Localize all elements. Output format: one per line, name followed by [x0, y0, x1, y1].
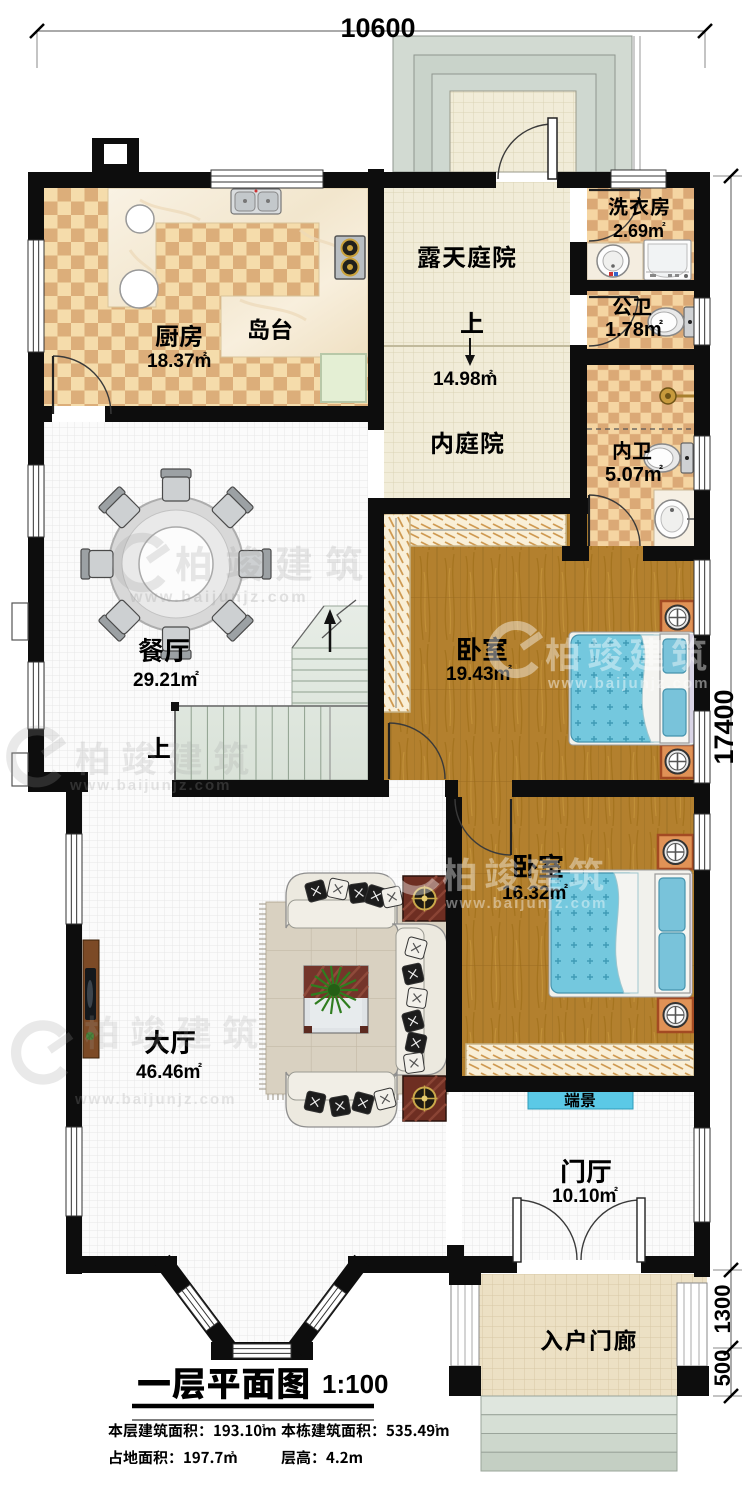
- svg-text:²: ²: [564, 881, 568, 895]
- svg-text:²: ²: [203, 349, 207, 363]
- svg-text:14.98m: 14.98m: [433, 369, 497, 390]
- svg-text:www.baijunjz.com: www.baijunjz.com: [74, 1091, 236, 1108]
- svg-text:1:100: 1:100: [322, 1369, 389, 1399]
- svg-text:www.baijunjz.com: www.baijunjz.com: [547, 675, 709, 692]
- svg-text:²: ²: [659, 317, 663, 331]
- svg-text:²: ²: [662, 221, 666, 233]
- svg-text:²: ²: [198, 1060, 202, 1074]
- svg-text:18.37m: 18.37m: [147, 351, 211, 372]
- svg-text:²: ²: [659, 462, 663, 476]
- svg-text:²: ²: [435, 1422, 438, 1432]
- svg-text:²: ²: [262, 1422, 265, 1432]
- svg-text:²: ²: [489, 367, 493, 381]
- svg-text:29.21m: 29.21m: [133, 670, 197, 691]
- svg-text:2.69m: 2.69m: [613, 221, 664, 241]
- svg-text:²: ²: [231, 1449, 234, 1459]
- svg-text:1300: 1300: [710, 1285, 735, 1334]
- svg-text:10.10m: 10.10m: [552, 1186, 616, 1207]
- svg-text:²: ²: [195, 668, 199, 682]
- svg-text:²: ²: [614, 1184, 618, 1198]
- svg-text:5.07m: 5.07m: [605, 464, 662, 486]
- svg-text:46.46m: 46.46m: [136, 1062, 200, 1083]
- svg-text:1.78m: 1.78m: [605, 319, 662, 341]
- svg-text:10600: 10600: [340, 13, 415, 43]
- svg-text:500: 500: [710, 1350, 735, 1387]
- svg-text:17400: 17400: [709, 689, 739, 764]
- svg-text:www.baijunjz.com: www.baijunjz.com: [445, 895, 607, 912]
- svg-text:www.baijunjz.com: www.baijunjz.com: [129, 589, 308, 606]
- svg-text:www.baijunjz.com: www.baijunjz.com: [69, 777, 231, 794]
